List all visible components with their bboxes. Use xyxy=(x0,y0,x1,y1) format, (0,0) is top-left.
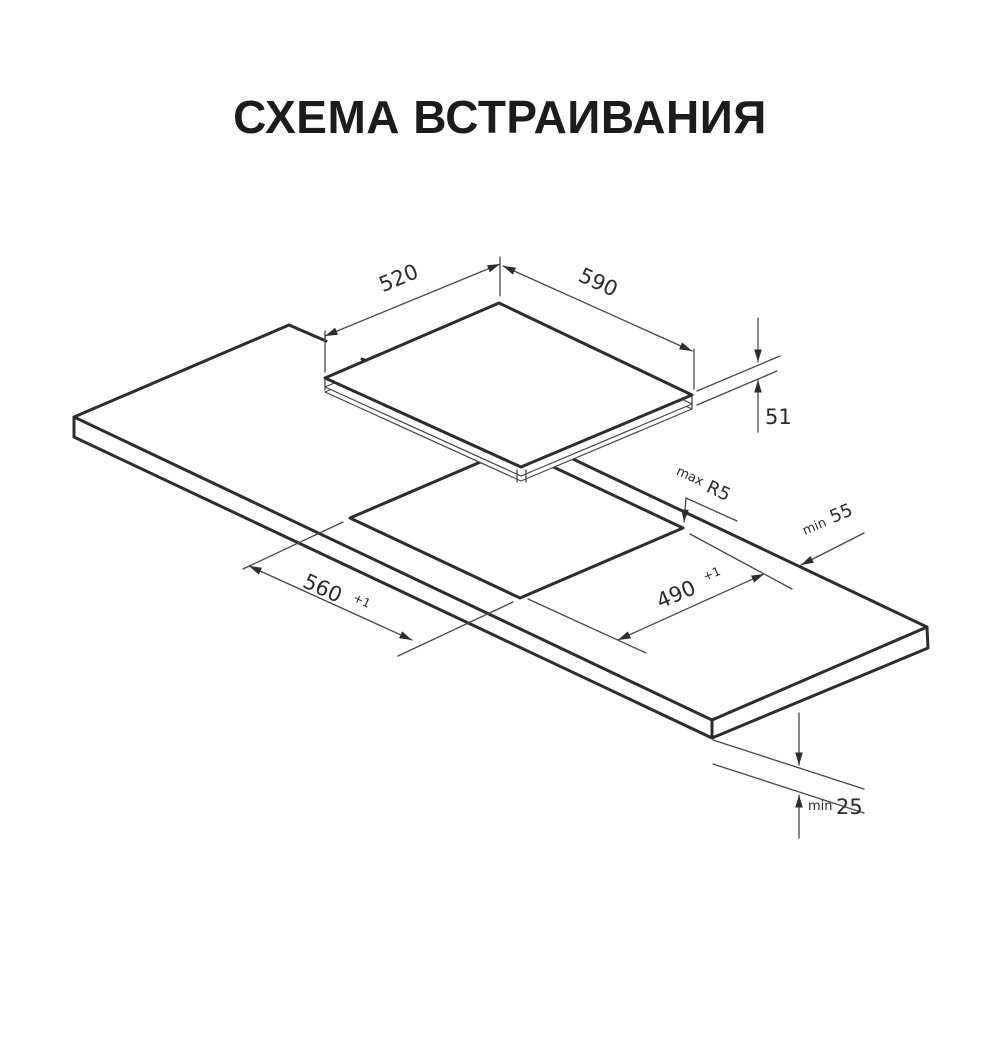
dim-bottom-clearance-prefix: min xyxy=(808,799,833,814)
dim-hob-height-label: 51 xyxy=(765,405,792,429)
installation-scheme-page: СХЕМА ВСТРАИВАНИЯ xyxy=(0,0,1000,1057)
dim-bottom-clearance: min 25 xyxy=(713,713,864,838)
dim-hob-width-label: 520 xyxy=(376,259,422,297)
dim-edge-clearance-leader xyxy=(801,533,864,565)
dim-corner-radius-label: R5 xyxy=(703,477,734,506)
dim-corner-radius-prefix: max xyxy=(674,464,706,490)
dim-cutout-width-label: 560 xyxy=(299,569,345,607)
dim-hob-height: 51 xyxy=(697,318,792,432)
dim-hob-depth-label: 590 xyxy=(575,263,621,301)
dim-hob-height-extension-lines xyxy=(697,356,780,405)
dim-edge-clearance-label: 55 xyxy=(827,500,856,528)
dim-bottom-clearance-label: 25 xyxy=(836,795,863,819)
dim-cutout-width-tolerance: +1 xyxy=(351,591,373,611)
installation-diagram: 520 590 51 max R5 xyxy=(0,0,1000,1057)
dim-edge-clearance: min 55 xyxy=(798,500,864,565)
dim-edge-clearance-prefix: min xyxy=(800,515,828,538)
